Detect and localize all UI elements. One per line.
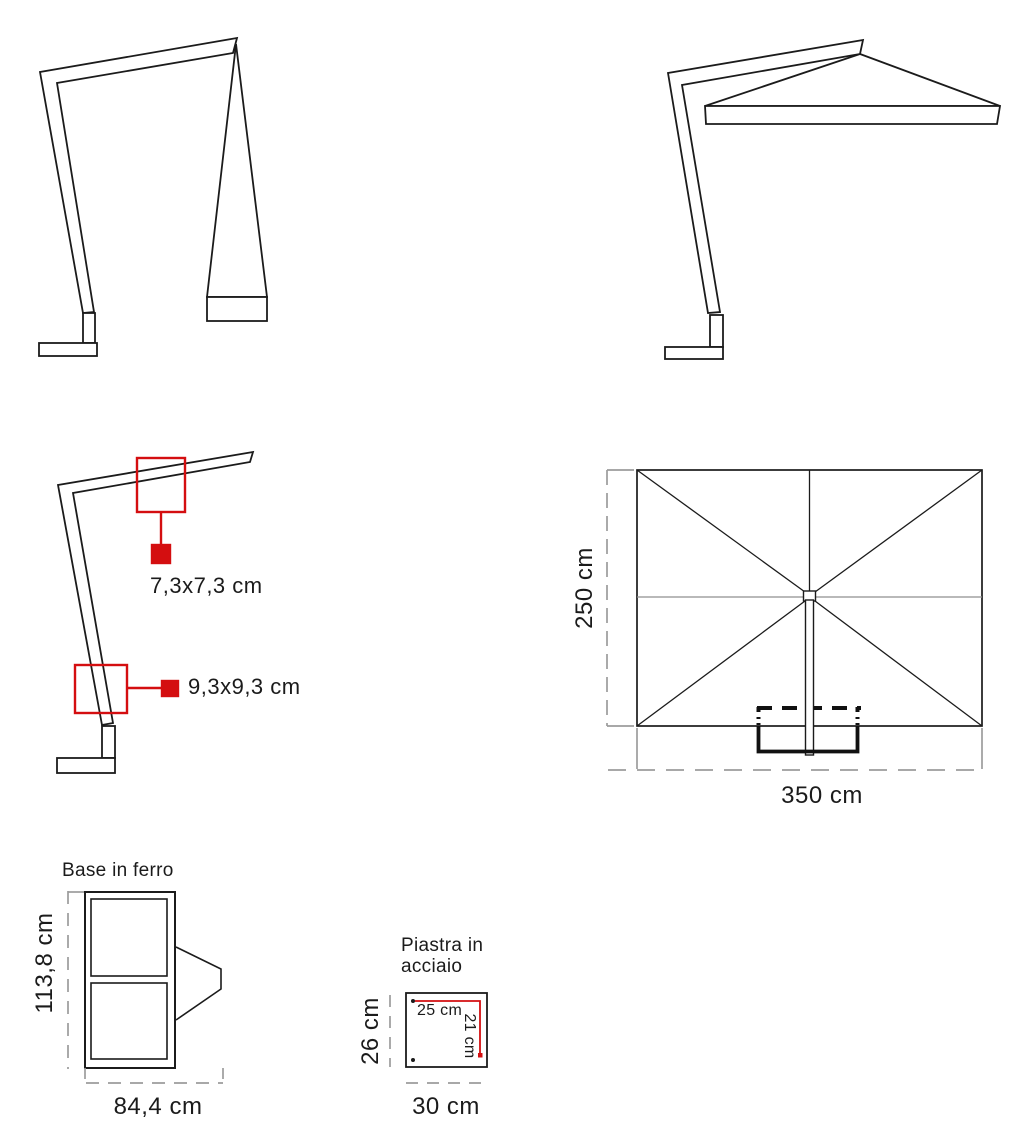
base-lower-panel: [91, 983, 167, 1059]
mast-joint: [102, 726, 115, 758]
plate-hole-height-label: 21 cm: [461, 1013, 477, 1058]
figure-frame-profile-callouts: [57, 452, 253, 773]
cantilever-arm-outline: [40, 38, 237, 313]
figure-iron-base: [68, 891, 223, 1083]
line-art-layer: [0, 0, 1024, 1142]
plate-width-label: 30 cm: [412, 1095, 480, 1119]
figure-open-umbrella-side: [665, 40, 1000, 359]
base-outer-frame: [85, 892, 175, 1068]
base-title: Base in ferro: [62, 861, 174, 880]
canopy-valance-band: [705, 106, 1000, 124]
plate-hole-spacing-end-marker: [478, 1053, 483, 1058]
lower-callout-swatch: [162, 681, 178, 696]
plate-hole-width-label: 25 cm: [417, 1003, 462, 1019]
top-view-depth-label: 250 cm: [573, 547, 597, 629]
figure-canopy-top-view: [607, 470, 984, 770]
base-foot: [57, 758, 115, 773]
base-foot: [665, 347, 723, 359]
base-width-label: 84,4 cm: [114, 1095, 203, 1119]
top-view-width-label: 350 cm: [781, 784, 863, 808]
mast-joint: [83, 313, 95, 343]
base-side-bracket: [176, 947, 221, 1020]
plate-height-label: 26 cm: [359, 997, 383, 1065]
base-foot: [39, 343, 97, 356]
lower-profile-callout-label: 9,3x9,3 cm: [188, 676, 301, 698]
upper-callout-swatch: [152, 545, 170, 563]
base-upper-panel: [91, 899, 167, 976]
plate-title-line-2: acciaio: [401, 957, 462, 976]
figure-closed-umbrella-side: [39, 38, 267, 356]
mast-pole-top-view: [806, 600, 814, 755]
canopy-rib-sw: [637, 601, 805, 726]
closed-canopy-end-cap: [207, 297, 267, 321]
base-height-label: 113,8 cm: [33, 913, 57, 1014]
closed-canopy-triangle: [207, 44, 267, 297]
plate-title-line-1: Piastra in: [401, 936, 483, 955]
mast-joint: [710, 315, 723, 347]
product-dimension-sheet: 7,3x7,3 cm 9,3x9,3 cm 250 cm 350 cm Base…: [0, 0, 1024, 1142]
canopy-rib-nw: [637, 470, 805, 592]
upper-profile-callout-label: 7,3x7,3 cm: [150, 575, 263, 597]
canopy-rib-ne: [815, 470, 982, 592]
plate-bolt-hole-bottom-left: [411, 1058, 415, 1062]
plate-bolt-hole-top-left: [411, 999, 415, 1003]
